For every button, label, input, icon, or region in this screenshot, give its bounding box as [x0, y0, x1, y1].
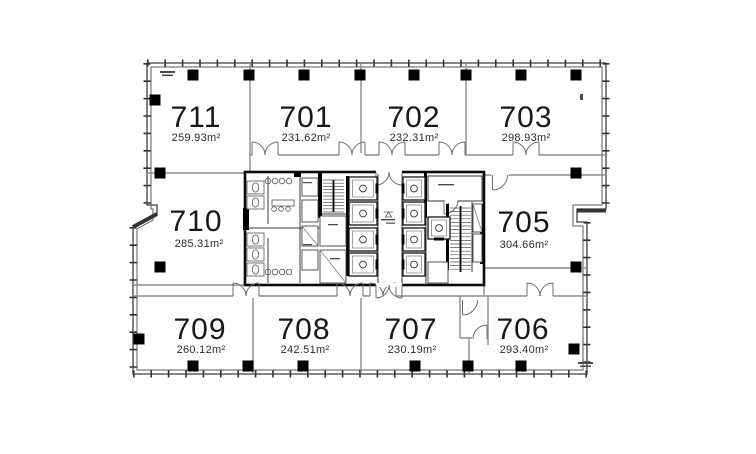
core-room-door-gap [444, 198, 458, 203]
room-709-area: 260.12m² [177, 344, 226, 356]
core-room-electrical [428, 176, 482, 201]
room-701-number: 701 [279, 101, 332, 134]
room-702-area: 232.31m² [390, 132, 439, 144]
room-706-number: 706 [496, 313, 549, 346]
room-708-number: 708 [277, 313, 330, 346]
room-711-number: 711 [171, 101, 222, 134]
room-709-number: 709 [173, 313, 226, 346]
room-707-number: 707 [384, 313, 437, 346]
room-701-area: 231.62m² [282, 132, 331, 144]
room-702-number: 702 [387, 101, 440, 134]
room-703-number: 703 [499, 101, 552, 134]
room-708-area: 242.51m² [281, 344, 330, 356]
floor-plan: 711 259.93m² 701 231.62m² 702 232.31m² 7… [0, 0, 756, 454]
room-703-area: 298.93m² [502, 132, 551, 144]
room-707-area: 230.19m² [388, 344, 437, 356]
room-710-number: 710 [169, 205, 222, 238]
room-710-area: 285.31m² [175, 238, 224, 250]
floor-plan-drawing: 711 259.93m² 701 231.62m² 702 232.31m² 7… [0, 0, 756, 454]
room-705-number: 705 [497, 206, 550, 239]
room-711-area: 259.93m² [172, 132, 221, 144]
room-705-area: 304.66m² [500, 239, 549, 251]
room-706-area: 293.40m² [500, 344, 549, 356]
